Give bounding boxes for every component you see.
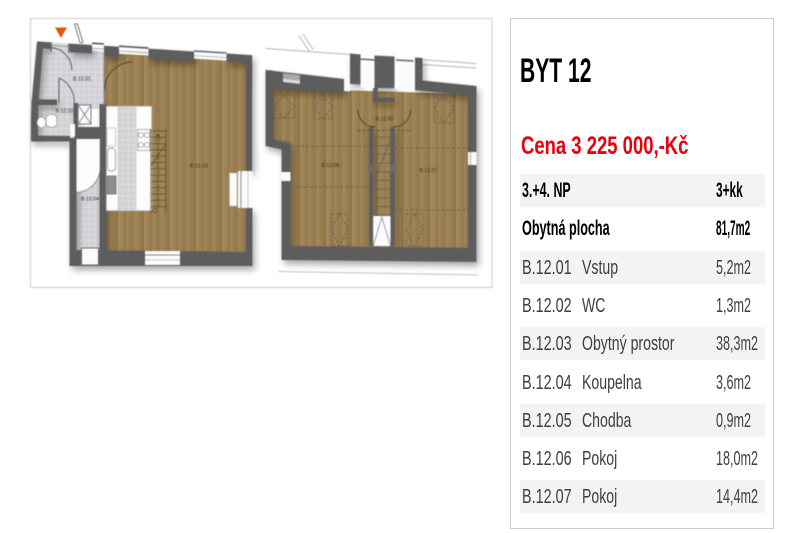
svg-text:B.12.01: B.12.01 [73, 77, 91, 83]
svg-text:B.12.05: B.12.05 [376, 117, 394, 123]
svg-text:B.12.04: B.12.04 [81, 197, 99, 203]
svg-text:B.12.03: B.12.03 [190, 164, 208, 170]
svg-text:B.12.02: B.12.02 [56, 109, 74, 115]
svg-text:B.12.07: B.12.07 [420, 168, 438, 174]
svg-text:B.12.06: B.12.06 [322, 163, 340, 169]
